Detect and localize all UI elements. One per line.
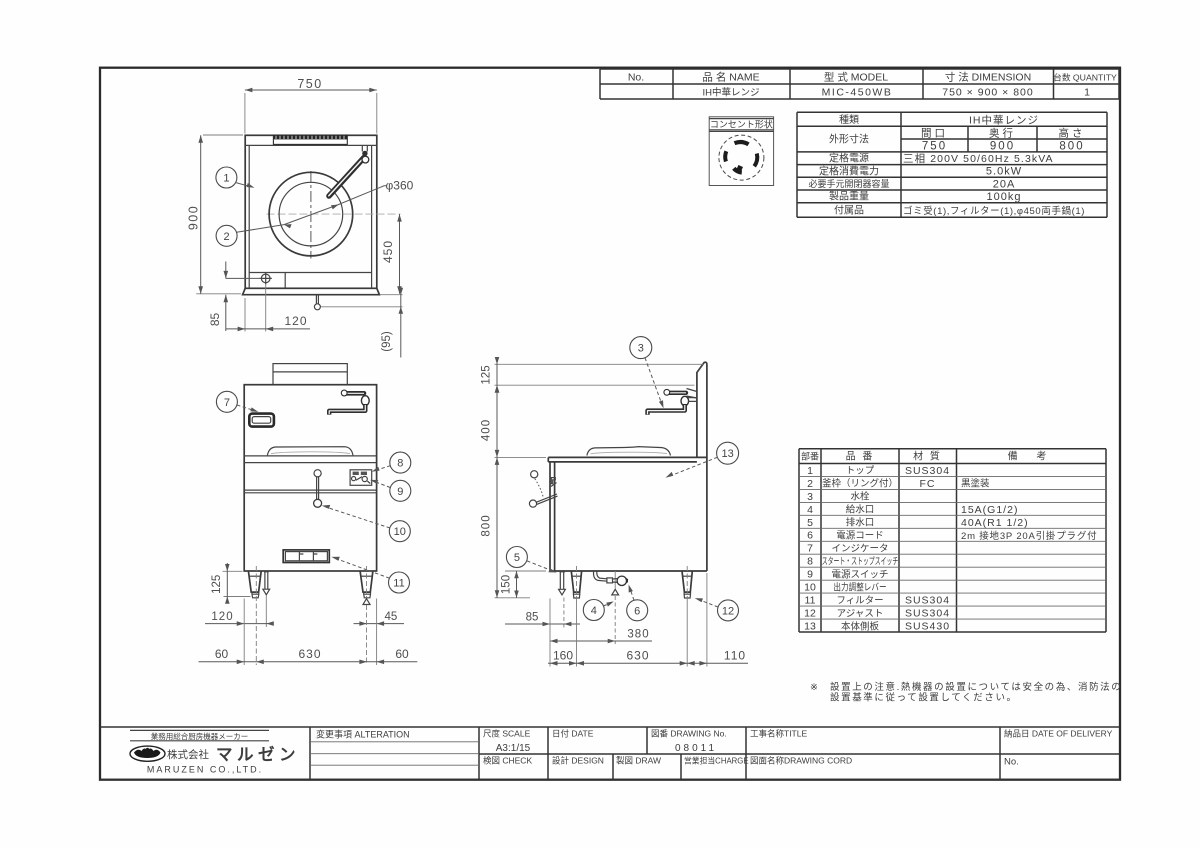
- svg-text:A3:1/15: A3:1/15: [496, 743, 531, 754]
- svg-text:トップ: トップ: [846, 466, 875, 477]
- svg-text:ゴミ受(1),フィルター(1),φ450両手鍋(1): ゴミ受(1),フィルター(1),φ450両手鍋(1): [903, 205, 1085, 217]
- svg-text:※: ※: [810, 682, 818, 693]
- svg-text:設置基準に従って設置してください。: 設置基準に従って設置してください。: [830, 692, 1018, 704]
- svg-text:SUS304: SUS304: [905, 465, 950, 477]
- svg-text:高さ: 高さ: [1059, 127, 1086, 140]
- svg-text:120: 120: [284, 314, 307, 328]
- svg-text:450: 450: [381, 240, 395, 263]
- svg-text:9: 9: [397, 486, 403, 498]
- svg-text:コンセント形状: コンセント形状: [710, 119, 773, 130]
- svg-text:外形寸法: 外形寸法: [829, 133, 869, 146]
- svg-text:750: 750: [297, 77, 322, 91]
- svg-text:5: 5: [807, 517, 813, 529]
- svg-text:60: 60: [215, 647, 229, 661]
- svg-text:900: 900: [990, 140, 1015, 152]
- svg-text:尺度 SCALE: 尺度 SCALE: [483, 729, 531, 739]
- svg-text:納品日 DATE OF DELIVERY: 納品日 DATE OF DELIVERY: [1004, 729, 1113, 739]
- svg-text:品 名 NAME: 品 名 NAME: [702, 71, 759, 84]
- svg-text:9: 9: [807, 569, 813, 581]
- svg-text:5: 5: [514, 552, 520, 564]
- svg-text:85: 85: [526, 611, 539, 623]
- svg-text:45: 45: [385, 611, 398, 623]
- svg-text:20A: 20A: [993, 178, 1016, 190]
- svg-text:図番 DRAWING No.: 図番 DRAWING No.: [651, 729, 727, 739]
- svg-text:6: 6: [634, 605, 640, 617]
- svg-text:160: 160: [553, 649, 573, 663]
- svg-text:インジケータ: インジケータ: [831, 544, 888, 555]
- svg-text:出力調整レバー: 出力調整レバー: [833, 580, 886, 592]
- svg-text:630: 630: [298, 647, 321, 661]
- svg-text:本体側板: 本体側板: [841, 620, 880, 632]
- svg-text:13: 13: [804, 621, 816, 633]
- svg-text:付属品: 付属品: [834, 204, 864, 217]
- svg-text:8: 8: [397, 458, 403, 470]
- svg-text:種類: 種類: [839, 113, 859, 126]
- svg-text:10: 10: [394, 526, 406, 538]
- svg-text:排水口: 排水口: [846, 517, 875, 529]
- svg-text:変更事項 ALTERATION: 変更事項 ALTERATION: [316, 729, 410, 740]
- svg-text:1: 1: [807, 465, 813, 477]
- svg-text:125: 125: [211, 575, 223, 594]
- svg-text:釜枠（リング付）: 釜枠（リング付）: [822, 478, 898, 490]
- svg-text:水栓: 水栓: [850, 491, 870, 503]
- svg-text:SUS304: SUS304: [905, 608, 950, 620]
- svg-text:08011: 08011: [675, 743, 717, 754]
- svg-text:スタート・ストップスイッチ: スタート・ストップスイッチ: [822, 556, 899, 567]
- svg-text:製図 DRAW: 製図 DRAW: [616, 756, 661, 766]
- svg-text:必要手元開閉器容量: 必要手元開閉器容量: [808, 178, 889, 189]
- svg-text:三相 200V 50/60Hz 5.3kVA: 三相 200V 50/60Hz 5.3kVA: [903, 152, 1054, 165]
- svg-text:材 質: 材 質: [913, 450, 942, 463]
- svg-text:12: 12: [804, 608, 816, 620]
- svg-text:型 式 MODEL: 型 式 MODEL: [824, 71, 888, 84]
- svg-text:MIC-450WB: MIC-450WB: [822, 87, 893, 99]
- svg-text:定格消費電力: 定格消費電力: [819, 164, 879, 177]
- svg-text:品 番: 品 番: [846, 451, 875, 463]
- svg-text:2m 接地3P 20A引掛プラグ付: 2m 接地3P 20A引掛プラグ付: [961, 530, 1097, 542]
- svg-text:寸 法 DIMENSION: 寸 法 DIMENSION: [945, 71, 1031, 84]
- svg-text:630: 630: [626, 649, 649, 663]
- svg-text:10: 10: [804, 582, 816, 594]
- svg-text:12: 12: [722, 605, 734, 617]
- svg-text:間口: 間口: [921, 128, 948, 140]
- svg-text:900: 900: [187, 205, 201, 230]
- svg-text:6: 6: [807, 530, 813, 542]
- svg-text:営業担当CHARGE: 営業担当CHARGE: [684, 756, 749, 766]
- svg-text:定格電源: 定格電源: [829, 152, 869, 165]
- svg-text:(95): (95): [381, 331, 393, 352]
- svg-text:日付 DATE: 日付 DATE: [552, 729, 594, 739]
- svg-text:マルゼン: マルゼン: [216, 744, 300, 764]
- svg-text:2: 2: [807, 478, 813, 490]
- svg-text:1: 1: [223, 173, 229, 185]
- svg-text:2: 2: [224, 231, 230, 243]
- svg-text:8: 8: [807, 556, 813, 568]
- svg-text:4: 4: [807, 504, 813, 516]
- svg-text:125: 125: [481, 365, 493, 384]
- svg-text:工事名称TITLE: 工事名称TITLE: [750, 729, 807, 739]
- svg-text:検図 CHECK: 検図 CHECK: [483, 756, 532, 766]
- svg-text:3: 3: [638, 343, 644, 355]
- svg-text:1: 1: [1084, 87, 1090, 99]
- svg-text:給水口: 給水口: [846, 504, 875, 516]
- svg-text:380: 380: [627, 628, 649, 640]
- svg-text:7: 7: [224, 397, 230, 409]
- svg-text:60: 60: [395, 647, 409, 661]
- svg-text:800: 800: [1059, 140, 1084, 152]
- svg-text:750: 750: [922, 140, 947, 152]
- svg-text:40A(R1 1/2): 40A(R1 1/2): [961, 517, 1029, 529]
- svg-text:設計 DESIGN: 設計 DESIGN: [552, 756, 604, 766]
- svg-text:奥行: 奥行: [989, 127, 1016, 140]
- svg-text:100kg: 100kg: [987, 191, 1022, 203]
- svg-text:150: 150: [501, 575, 513, 594]
- svg-text:IH中華レンジ: IH中華レンジ: [702, 87, 759, 99]
- svg-text:11: 11: [805, 595, 816, 607]
- svg-text:85: 85: [208, 313, 222, 327]
- svg-text:フィルター: フィルター: [836, 595, 883, 606]
- svg-text:備 考: 備 考: [1008, 450, 1055, 463]
- svg-text:750 × 900 × 800: 750 × 900 × 800: [942, 87, 1034, 99]
- svg-text:製品重量: 製品重量: [829, 190, 869, 203]
- svg-text:電源スイッチ: 電源スイッチ: [831, 570, 888, 581]
- svg-text:110: 110: [724, 649, 746, 663]
- svg-text:120: 120: [211, 611, 233, 623]
- svg-text:No.: No.: [628, 72, 644, 84]
- svg-text:業務用総合厨房機器メーカー: 業務用総合厨房機器メーカー: [151, 731, 249, 741]
- svg-text:φ360: φ360: [386, 179, 414, 193]
- svg-text:IH中華レンジ: IH中華レンジ: [969, 114, 1039, 127]
- svg-text:黒塗装: 黒塗装: [961, 478, 990, 490]
- svg-text:SUS430: SUS430: [905, 621, 950, 633]
- svg-text:アジャスト: アジャスト: [837, 608, 884, 619]
- svg-text:設置上の注意.熱機器の設置については安全の為、消防法の: 設置上の注意.熱機器の設置については安全の為、消防法の: [830, 681, 1122, 693]
- svg-text:4: 4: [591, 605, 597, 617]
- svg-text:11: 11: [393, 578, 404, 590]
- svg-text:7: 7: [807, 543, 813, 555]
- svg-text:3: 3: [807, 491, 813, 503]
- svg-text:13: 13: [721, 448, 733, 460]
- svg-text:FC: FC: [920, 478, 936, 490]
- svg-text:電源コード: 電源コード: [836, 531, 884, 542]
- svg-text:株式会社: 株式会社: [167, 748, 209, 761]
- svg-text:部番: 部番: [801, 451, 819, 462]
- svg-text:800: 800: [481, 514, 493, 536]
- svg-text:MARUZEN CO.,LTD.: MARUZEN CO.,LTD.: [147, 765, 263, 775]
- svg-text:SUS304: SUS304: [905, 595, 950, 607]
- svg-text:No.: No.: [1004, 757, 1019, 768]
- svg-text:400: 400: [481, 419, 493, 441]
- svg-text:台数 QUANTITY: 台数 QUANTITY: [1053, 72, 1117, 83]
- svg-text:15A(G1/2): 15A(G1/2): [961, 504, 1018, 516]
- svg-text:図面名称DRAWING CORD: 図面名称DRAWING CORD: [750, 756, 852, 766]
- svg-text:5.0kW: 5.0kW: [986, 166, 1022, 178]
